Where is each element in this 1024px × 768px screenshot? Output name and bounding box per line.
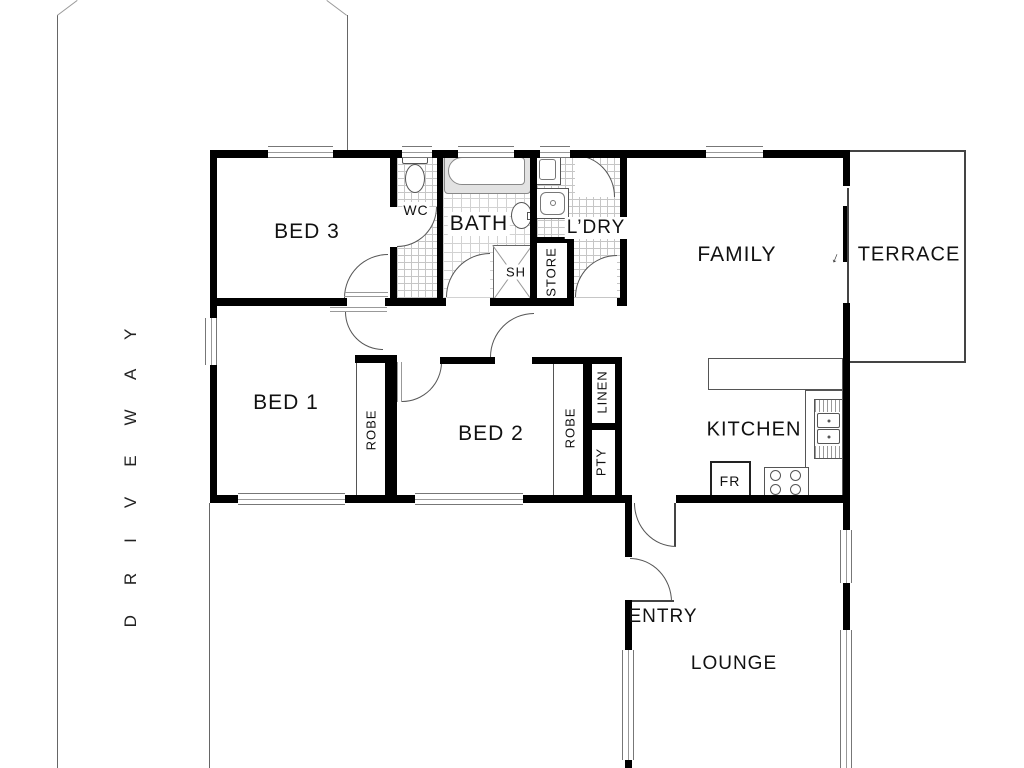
wall	[397, 298, 437, 306]
wall	[437, 150, 443, 306]
label-pty: PTY	[594, 448, 609, 476]
terrace-right-line	[964, 150, 966, 363]
driveway-right-line	[347, 15, 348, 150]
sliding-door-arrow-icon: ↓	[829, 249, 843, 268]
wall	[385, 355, 397, 496]
sink-drain-icon	[827, 419, 830, 422]
hall-door-arc	[490, 313, 534, 357]
room-label-bath: BATH	[448, 212, 510, 236]
kitchen-entry-door-leaf	[674, 503, 676, 546]
wall	[843, 303, 850, 503]
toilet-bowl-icon	[405, 164, 425, 193]
sink-drainer-bottom-icon	[815, 446, 842, 458]
window	[840, 630, 852, 768]
room-label-wc: WC	[402, 202, 429, 218]
entry-front-door-leaf	[631, 600, 674, 602]
window	[238, 493, 345, 505]
floor-plan: DRIVEWAY	[0, 0, 1024, 768]
window	[415, 493, 523, 505]
window	[540, 146, 570, 158]
bed2-door-arc	[402, 362, 442, 402]
room-label-terrace: TERRACE	[858, 244, 961, 267]
wall	[567, 237, 574, 306]
wall	[583, 357, 622, 364]
room-label-bed2: BED 2	[458, 422, 524, 446]
wall	[390, 150, 397, 207]
room-label-lounge: LOUNGE	[691, 653, 777, 675]
window	[706, 146, 763, 158]
bed2-robe-front-line	[553, 364, 554, 495]
window	[840, 530, 852, 583]
terrace-top-line	[850, 150, 966, 152]
terrace-bottom-line	[850, 361, 966, 363]
wall	[625, 760, 632, 768]
wall	[625, 503, 632, 557]
kitchen-bench-top	[708, 358, 843, 390]
room-label-entry: ENTRY	[628, 606, 697, 628]
bed1-robe-front-line	[356, 363, 357, 495]
driveway-label: DRIVEWAY	[121, 299, 141, 628]
burner-icon	[790, 484, 801, 495]
window	[205, 318, 217, 365]
window	[622, 650, 634, 760]
sliding-door-track-icon	[847, 188, 849, 304]
wall	[583, 423, 622, 430]
wall	[210, 298, 347, 306]
room-label-bed3: BED 3	[274, 220, 340, 244]
window	[268, 146, 333, 158]
wall	[490, 298, 530, 306]
entry-front-door-arc	[630, 558, 672, 602]
wall	[440, 357, 495, 364]
bed3-door-jamb	[344, 292, 388, 297]
room-label-bed1: BED 1	[253, 391, 319, 415]
room-label-family: FAMILY	[697, 243, 776, 267]
driveway-chamfer-right	[326, 0, 347, 16]
burner-icon	[770, 484, 781, 495]
label-linen: LINEN	[595, 370, 610, 413]
wall	[390, 247, 397, 306]
wall	[583, 357, 592, 503]
wall	[530, 298, 574, 306]
label-robe-bed2: ROBE	[563, 408, 578, 449]
sink-bowl-top-icon	[817, 413, 840, 428]
wall	[843, 583, 850, 630]
sliding-door-panel-icon	[843, 206, 847, 262]
yard-boundary-line	[209, 503, 210, 768]
room-label-ldry: L’DRY	[565, 217, 628, 239]
wall	[676, 495, 850, 503]
label-store: STORE	[544, 247, 559, 297]
room-label-kitchen: KITCHEN	[707, 419, 802, 442]
bed1-door-jamb	[330, 307, 387, 312]
label-fr: FR	[720, 473, 741, 489]
label-sh: SH	[505, 265, 527, 280]
window	[402, 146, 432, 158]
wall	[530, 150, 537, 306]
washing-machine-knob-icon	[550, 200, 556, 206]
wall	[843, 503, 850, 530]
bed1-door-arc	[345, 312, 383, 350]
bed2-door-jamb	[397, 362, 402, 402]
sink-drain-icon	[827, 435, 830, 438]
stove-burners-icon	[764, 467, 809, 497]
wall	[532, 357, 585, 364]
burner-icon	[790, 470, 801, 481]
sink-drainer-top-icon	[815, 400, 842, 412]
label-robe-bed1: ROBE	[364, 410, 379, 451]
driveway-left-line	[57, 15, 58, 768]
wall	[615, 357, 622, 503]
burner-icon	[770, 470, 781, 481]
wall	[843, 150, 850, 186]
driveway-chamfer-left	[57, 0, 78, 16]
bathtub-inner-icon	[448, 157, 525, 185]
kitchen-entry-door-arc	[634, 503, 676, 547]
wall	[437, 298, 446, 306]
laundry-tub-inner-icon	[539, 159, 556, 180]
window	[458, 146, 514, 158]
sink-bowl-bottom-icon	[817, 429, 840, 444]
